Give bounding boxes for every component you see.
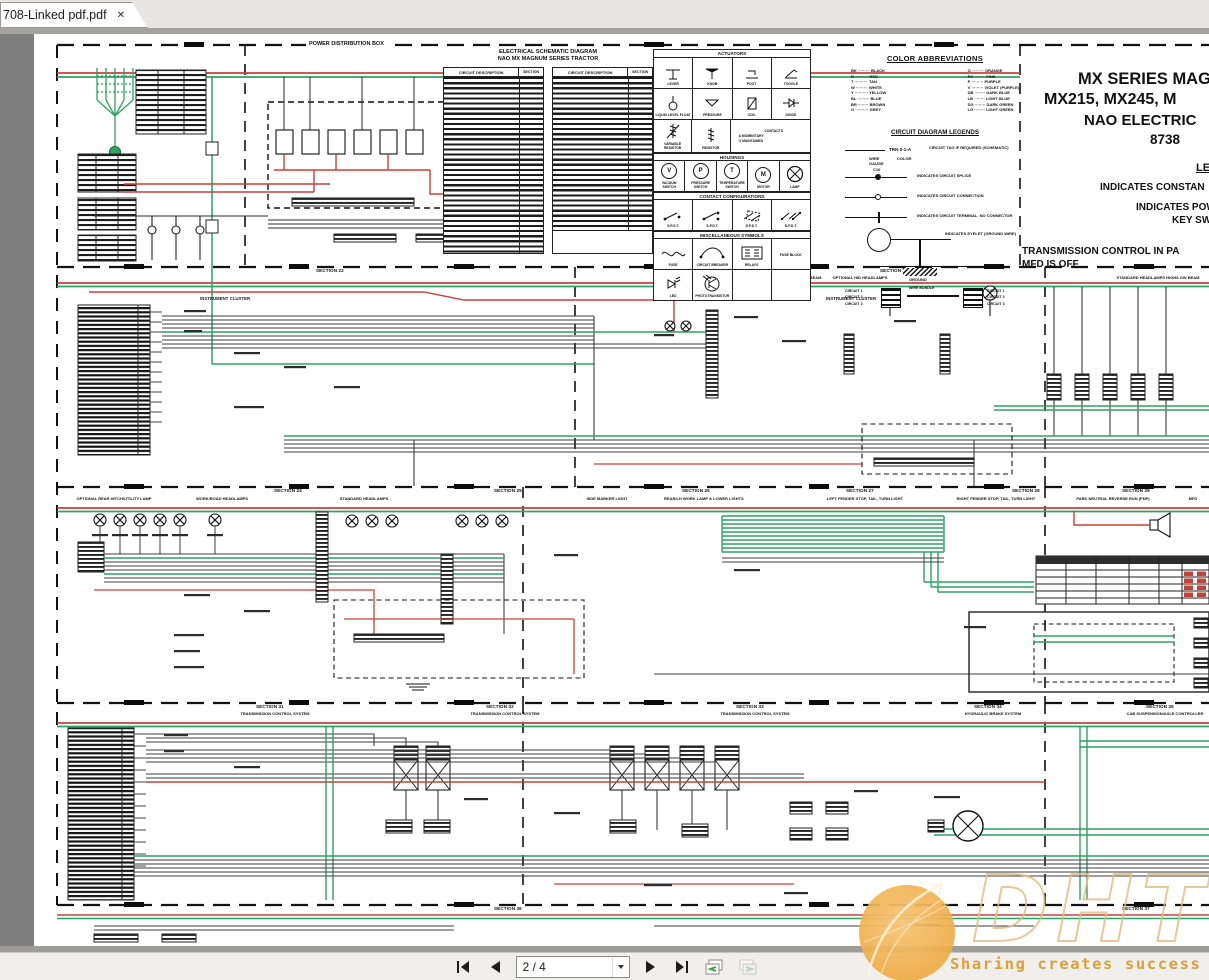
page-number-combo[interactable]: 2 / 4 — [516, 956, 630, 978]
section-sublabel: WORK/ROAD HEADLAMPS — [192, 496, 252, 501]
pdf-viewer-window: 708-Linked pdf.pdf ✕ — [0, 0, 1209, 980]
housings-header: HOUSINGS — [654, 153, 810, 161]
diode-icon — [781, 95, 801, 111]
section-sublabel: REAR/LH WORK LAMP & LOWER LIGHTS — [664, 496, 742, 501]
toggle-icon — [781, 66, 801, 80]
section-sublabel: STANDARD HEADLAMPS — [334, 496, 394, 501]
legend-heading: LEGE — [1196, 162, 1209, 174]
section-sublabel: CAB SUSPENSION/AXLE CONTROLLER — [1120, 711, 1209, 716]
section-label: SECTION 31 — [256, 704, 284, 709]
contacts-label: CONTACTS — [764, 129, 783, 134]
previous-page-button[interactable] — [484, 956, 506, 978]
circuit-description-block: ELECTRICAL SCHEMATIC DIAGRAM NAO MX MAGN… — [443, 49, 653, 263]
section-sublabel: RIGHT FENDER STOP, TAIL, TURN LIGHT — [954, 496, 1038, 501]
col-circuit-description: CIRCUIT DESCRIPTION — [444, 68, 519, 76]
misc-symbols-header: MISCELLANEOUS SYMBOLS — [654, 231, 810, 239]
section-label: SECTION 35 — [1146, 704, 1174, 709]
liquid-level-float-icon — [663, 95, 683, 111]
section-label: SECTION 24 — [274, 488, 302, 493]
section-label: SECTION 22 — [316, 268, 344, 273]
last-page-button[interactable] — [672, 956, 694, 978]
circuit-legends-title: CIRCUIT DIAGRAM LEGENDS — [845, 129, 1025, 136]
circuit-rows — [444, 77, 543, 253]
first-page-button[interactable] — [452, 956, 474, 978]
section-sublabel: TRANSMISSION CONTROL SYSTEM — [230, 711, 320, 716]
circuit-breaker-icon — [699, 247, 725, 261]
section-sublabel: SIDE MARKER LIGHT — [582, 496, 632, 501]
schematic-subtitle: NAO MX MAGNUM SERIES TRACTOR — [443, 56, 653, 63]
band3 — [78, 511, 1209, 692]
section-label: SECTION 37 — [1122, 906, 1150, 911]
section-label: SECTION 28 — [1012, 488, 1040, 493]
temperature-switch-icon: T — [724, 163, 740, 179]
schematic-title: ELECTRICAL SCHEMATIC DIAGRAM — [443, 49, 653, 56]
next-view-button[interactable] — [736, 956, 758, 978]
legend-terminal: INDICATES CIRCUIT TERMINAL, NO CONNECTOR — [845, 212, 1025, 222]
note-line1: TRANSMISSION CONTROL IN PA — [1022, 246, 1179, 257]
led-icon — [663, 276, 683, 292]
series-title: MX SERIES MAG — [1078, 70, 1209, 89]
section-sublabel: TRANSMISSION CONTROL SYSTEM — [460, 711, 550, 716]
color-list-left: BK ········· BLACK R ·········· RED T ··… — [851, 68, 886, 113]
variable-resistor-icon — [663, 122, 683, 140]
close-icon[interactable]: ✕ — [117, 10, 125, 21]
spdt-icon — [701, 209, 723, 222]
dpdt-icon — [780, 209, 802, 222]
contacts-maintained: O MAINTAINED — [739, 139, 764, 144]
legend-line3: KEY SWI — [1172, 215, 1209, 226]
tab-title: 708-Linked pdf.pdf — [0, 8, 107, 22]
legend-connectors: CIRCUIT 1 CIRCUIT 2 CIRCUIT 3 WIRE BUNDL… — [845, 286, 1025, 316]
chevron-down-icon[interactable] — [612, 957, 629, 977]
lever-icon — [663, 66, 683, 80]
section-label: SECTION 36 — [494, 906, 522, 911]
coil-icon — [742, 95, 762, 111]
section-label: SECTION 27 — [846, 488, 874, 493]
electrical-title: NAO ELECTRIC — [1084, 112, 1197, 129]
foot-icon — [742, 66, 762, 80]
color-abbrev-title: COLOR ABBREVIATIONS — [845, 54, 1025, 63]
wire-label-marks — [92, 310, 986, 926]
section-sublabel: PARK NEUTRAL REVERSE RUN (PNP) — [1068, 496, 1158, 501]
band4 — [68, 727, 1209, 900]
pressure-switch-icon: P — [693, 163, 709, 179]
section-sublabel: OPTIONAL REAR HITCH/UTILITY LAMP — [76, 496, 152, 501]
spst-icon — [662, 209, 684, 222]
fuse-block-label: FUSE BLOCK — [780, 253, 802, 257]
power-box-label: POWER DISTRIBUTION BOX — [306, 41, 387, 47]
knob-icon — [702, 66, 722, 80]
section-sublabel: STANDARD HEADLAMPS HIGH/LOW BEAM — [1116, 275, 1200, 280]
col-section: SECTION — [628, 68, 652, 76]
motor-icon: M — [755, 167, 771, 183]
section-sublabel: HYDRAULIC BRAKE SYSTEM — [954, 711, 1032, 716]
note-line2: MFD IS OFF — [1022, 259, 1079, 270]
document-number: 8738 — [1150, 132, 1180, 147]
section-label: SECTION 25 — [494, 488, 522, 493]
circuit-table-right: CIRCUIT DESCRIPTION SECTION — [552, 67, 653, 254]
instrument-cluster-label: INSTRUMENT CLUSTER — [200, 296, 250, 301]
document-canvas: POWER DISTRIBUTION BOX SECTION 22 SECTIO… — [0, 34, 1209, 946]
legend-ground: GROUND — [845, 262, 1025, 278]
color-abbreviations-block: COLOR ABBREVIATIONS BK ········· BLACK R… — [845, 54, 1025, 316]
col-section: SECTION — [519, 68, 543, 76]
circuit-rows — [553, 77, 652, 253]
wire-tag-legend: TRN 0-1-A WIRE GAUGE COLOR CIRCUIT TAG I… — [845, 144, 1025, 162]
legend-line1: INDICATES CONSTAN — [1100, 182, 1205, 193]
symbols-legend: ACTUATORS LEVER KNOB FOOT TOGGLE LIQUID … — [653, 49, 811, 301]
legend-line2: INDICATES POW — [1136, 202, 1209, 213]
page-navigation-toolbar: 2 / 4 — [0, 952, 1209, 980]
section-sublabel: MFD — [1180, 496, 1206, 501]
lamp-icon — [786, 165, 804, 183]
vacuum-switch-icon: V — [661, 163, 677, 179]
section-label: SECTION 32 — [486, 704, 514, 709]
legend-splice: C10 INDICATES CIRCUIT SPLICE — [845, 172, 1025, 182]
document-tab[interactable]: 708-Linked pdf.pdf ✕ — [0, 2, 148, 28]
pressure-icon — [702, 95, 722, 111]
resistor-icon — [701, 126, 721, 144]
page-number-value[interactable]: 2 / 4 — [517, 960, 612, 974]
section-sublabel: LEFT FENDER STOP, TAIL, TURN LIGHT — [824, 496, 906, 501]
model-list: MX215, MX245, M — [1044, 91, 1177, 109]
actuators-header: ACTUATORS — [654, 50, 810, 58]
legend-eyelet: INDICATES EYELET (GROUND WIRE) — [845, 228, 1025, 262]
phototransistor-icon — [701, 274, 723, 292]
section-sublabel: TRANSMISSION CONTROL SYSTEM — [710, 711, 800, 716]
band2 — [78, 286, 1209, 486]
legend-connection: INDICATES CIRCUIT CONNECTION — [845, 192, 1025, 202]
section-label: SECTION 33 — [736, 704, 764, 709]
section-label: SECTION 34 — [974, 704, 1002, 709]
relay-icon — [740, 245, 764, 261]
col-circuit-description: CIRCUIT DESCRIPTION — [553, 68, 628, 76]
schematic-page: POWER DISTRIBUTION BOX SECTION 22 SECTIO… — [34, 34, 1209, 946]
section-label: SECTION 29 — [1122, 488, 1150, 493]
circuit-table-left: CIRCUIT DESCRIPTION SECTION — [443, 67, 544, 254]
dpst-icon — [741, 209, 763, 222]
fuse-icon — [660, 247, 686, 261]
contact-config-header: CONTACT CONFIGURATIONS — [654, 192, 810, 200]
tab-bar: 708-Linked pdf.pdf ✕ — [0, 0, 1209, 29]
next-page-button[interactable] — [640, 956, 662, 978]
section-label: SECTION 26 — [682, 488, 710, 493]
previous-view-button[interactable] — [704, 956, 726, 978]
color-list-right: O ········· ORANGE PK ········ PINK P ··… — [968, 68, 1019, 113]
